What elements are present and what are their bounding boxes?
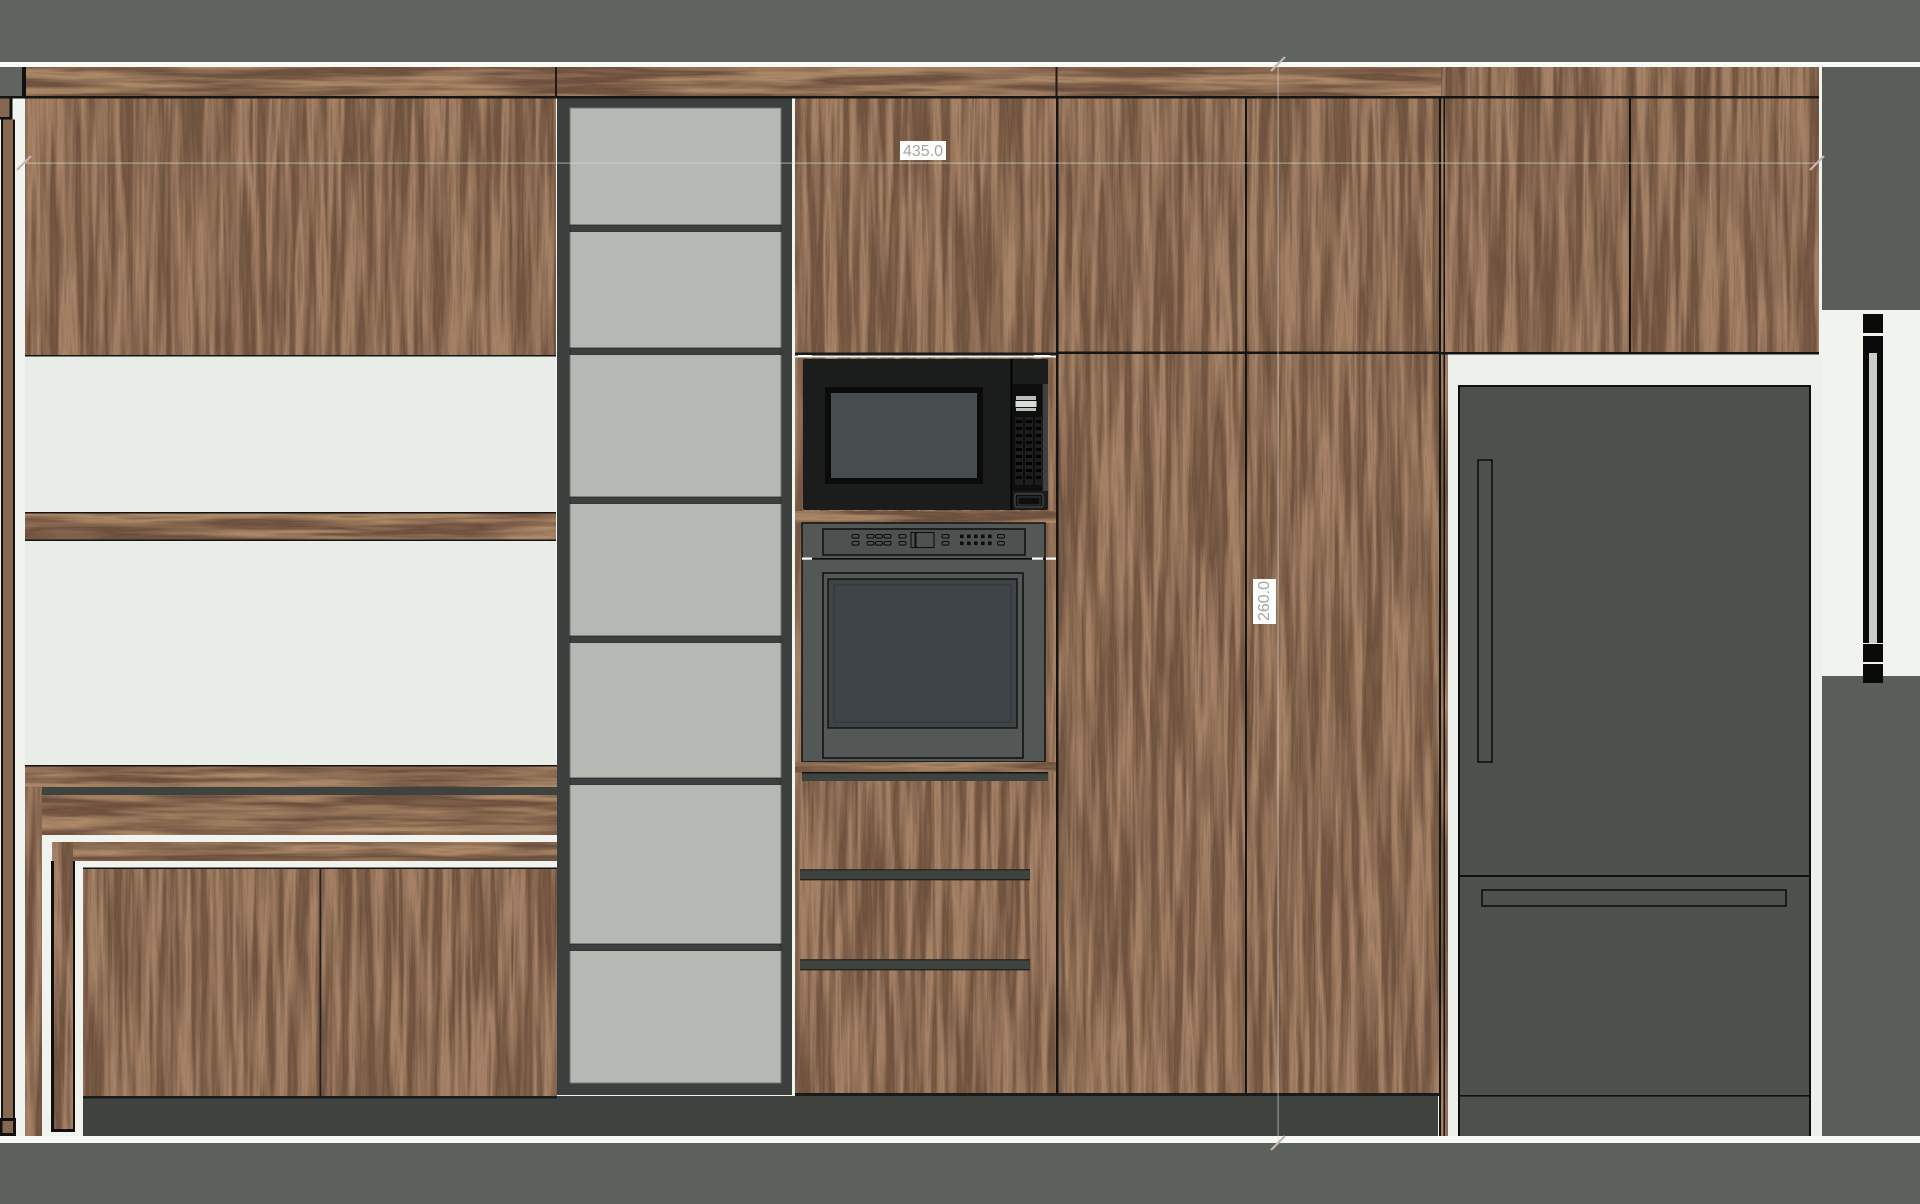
svg-text:435.0: 435.0 xyxy=(903,143,943,160)
svg-text:260.0: 260.0 xyxy=(1256,581,1273,621)
